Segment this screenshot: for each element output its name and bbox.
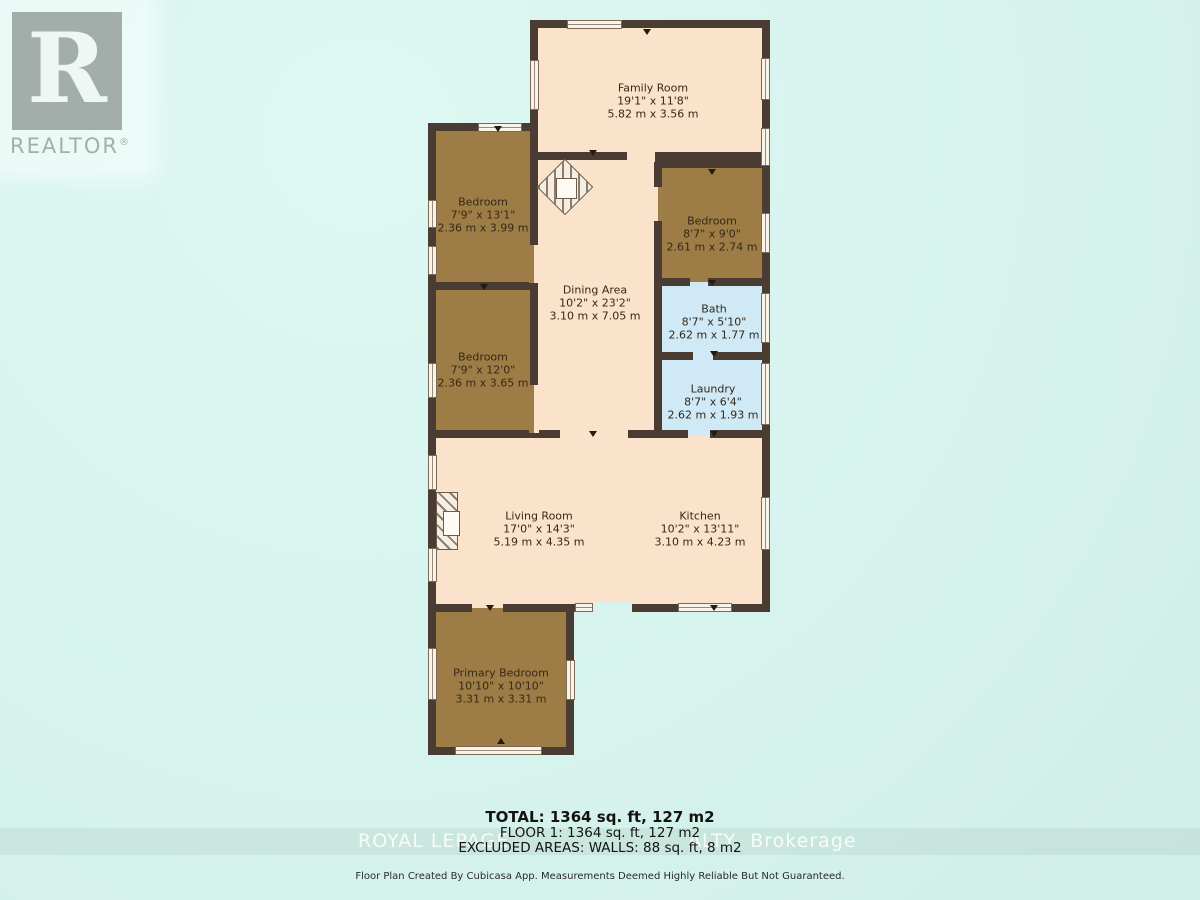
window-bedroom1-left-1 <box>428 200 437 228</box>
door-swing-marker <box>486 605 494 611</box>
room-dims-imperial: 7'9" x 13'1" <box>438 209 529 222</box>
room-dims-imperial: 10'10" x 10'10" <box>453 680 549 693</box>
door-swing-marker <box>710 351 718 357</box>
door-swing-marker <box>497 738 505 744</box>
room-name: Bedroom <box>438 351 529 364</box>
window-bedroom2-left <box>428 363 437 398</box>
room-dims-imperial: 8'7" x 5'10" <box>669 316 760 329</box>
window-living-left-1 <box>428 455 437 490</box>
door-swing-marker <box>643 29 651 35</box>
room-label-family-room: Family Room 19'1" x 11'8" 5.82 m x 3.56 … <box>608 82 699 121</box>
room-dims-metric: 2.61 m x 2.74 m <box>667 241 758 254</box>
door-opening-family-dining <box>627 149 655 162</box>
room-name: Bedroom <box>438 196 529 209</box>
realtor-logo-letter: R <box>27 21 107 117</box>
room-dims-metric: 5.19 m x 4.35 m <box>494 536 585 549</box>
door-swing-marker <box>589 431 597 437</box>
room-label-primary-bedroom: Primary Bedroom 10'10" x 10'10" 3.31 m x… <box>453 667 549 706</box>
room-dims-imperial: 19'1" x 11'8" <box>608 95 699 108</box>
room-label-laundry: Laundry 8'7" x 6'4" 2.62 m x 1.93 m <box>668 383 759 422</box>
window-primary-bottom <box>455 746 542 755</box>
window-family-left <box>530 60 539 110</box>
room-name: Laundry <box>668 383 759 396</box>
door-opening-bedroom-bath <box>690 277 708 287</box>
realtor-logo-icon: R <box>12 12 122 130</box>
excluded-area-text: EXCLUDED AREAS: WALLS: 88 sq. ft, 8 m2 <box>458 841 741 856</box>
room-name: Dining Area <box>550 284 641 297</box>
room-name: Bedroom <box>667 215 758 228</box>
door-opening-laundry-kitchen <box>688 429 710 441</box>
door-swing-marker <box>708 280 716 286</box>
room-dims-metric: 3.10 m x 7.05 m <box>550 310 641 323</box>
room-dims-imperial: 8'7" x 6'4" <box>668 396 759 409</box>
room-dims-metric: 2.36 m x 3.99 m <box>438 222 529 235</box>
room-dims-imperial: 8'7" x 9'0" <box>667 228 758 241</box>
room-label-living-room: Living Room 17'0" x 14'3" 5.19 m x 4.35 … <box>494 510 585 549</box>
room-dims-metric: 5.82 m x 3.56 m <box>608 108 699 121</box>
door-swing-marker <box>708 169 716 175</box>
total-area-text: TOTAL: 1364 sq. ft, 127 m2 <box>458 808 741 826</box>
fireplace-symbol-core <box>443 511 460 536</box>
window-primary-right <box>566 660 575 700</box>
room-label-bath: Bath 8'7" x 5'10" 2.62 m x 1.77 m <box>669 303 760 342</box>
window-family-right-1 <box>761 58 770 100</box>
room-name: Bath <box>669 303 760 316</box>
door-swing-marker <box>480 284 488 290</box>
room-dims-imperial: 10'2" x 13'11" <box>655 523 746 536</box>
floor-plan-image: R REALTOR® <box>0 0 1200 900</box>
stove-symbol-core <box>556 178 577 199</box>
window-primary-left <box>428 648 437 700</box>
room-label-dining-area: Dining Area 10'2" x 23'2" 3.10 m x 7.05 … <box>550 284 641 323</box>
room-name: Living Room <box>494 510 585 523</box>
room-label-kitchen: Kitchen 10'2" x 13'11" 3.10 m x 4.23 m <box>655 510 746 549</box>
door-opening-bedroom1-dining <box>529 245 539 283</box>
window-family-top <box>567 20 622 29</box>
realtor-logo-wordmark: REALTOR® <box>10 134 138 158</box>
window-living-bottom-small <box>575 603 593 612</box>
room-dims-imperial: 10'2" x 23'2" <box>550 297 641 310</box>
door-swing-marker <box>494 126 502 132</box>
cubicasa-disclaimer: Floor Plan Created By Cubicasa App. Meas… <box>355 871 844 882</box>
window-kitchen-right <box>761 497 770 550</box>
window-family-right-2 <box>761 128 770 166</box>
room-dims-metric: 2.62 m x 1.93 m <box>668 409 759 422</box>
window-bedroom-right <box>761 213 770 253</box>
room-dims-metric: 3.10 m x 4.23 m <box>655 536 746 549</box>
room-dims-metric: 3.31 m x 3.31 m <box>453 693 549 706</box>
room-label-bedroom-mid-left: Bedroom 7'9" x 12'0" 2.36 m x 3.65 m <box>438 351 529 390</box>
door-opening-dining-bedroom-right <box>653 187 663 221</box>
window-living-left-2 <box>428 548 437 582</box>
window-kitchen-bottom <box>678 603 732 612</box>
room-dims-metric: 2.62 m x 1.77 m <box>669 329 760 342</box>
area-summary: TOTAL: 1364 sq. ft, 127 m2 FLOOR 1: 1364… <box>458 808 741 856</box>
room-label-bedroom-right: Bedroom 8'7" x 9'0" 2.61 m x 2.74 m <box>667 215 758 254</box>
door-opening-bedroom2-dining <box>529 385 539 433</box>
floor1-area-text: FLOOR 1: 1364 sq. ft, 127 m2 <box>458 826 741 841</box>
window-bedroom1-left-2 <box>428 246 437 275</box>
room-dims-imperial: 7'9" x 12'0" <box>438 364 529 377</box>
realtor-wordmark-text: REALTOR <box>10 134 119 158</box>
door-swing-marker <box>710 605 718 611</box>
room-label-bedroom-top-left: Bedroom 7'9" x 13'1" 2.36 m x 3.99 m <box>438 196 529 235</box>
room-name: Kitchen <box>655 510 746 523</box>
room-name: Primary Bedroom <box>453 667 549 680</box>
door-swing-marker <box>589 150 597 156</box>
door-swing-marker <box>710 431 718 437</box>
registered-trademark-symbol: ® <box>119 137 131 148</box>
room-name: Family Room <box>608 82 699 95</box>
door-opening-exterior <box>593 602 632 612</box>
room-dims-metric: 2.36 m x 3.65 m <box>438 377 529 390</box>
room-dims-imperial: 17'0" x 14'3" <box>494 523 585 536</box>
window-laundry-right <box>761 363 770 425</box>
window-bath-right <box>761 293 770 343</box>
